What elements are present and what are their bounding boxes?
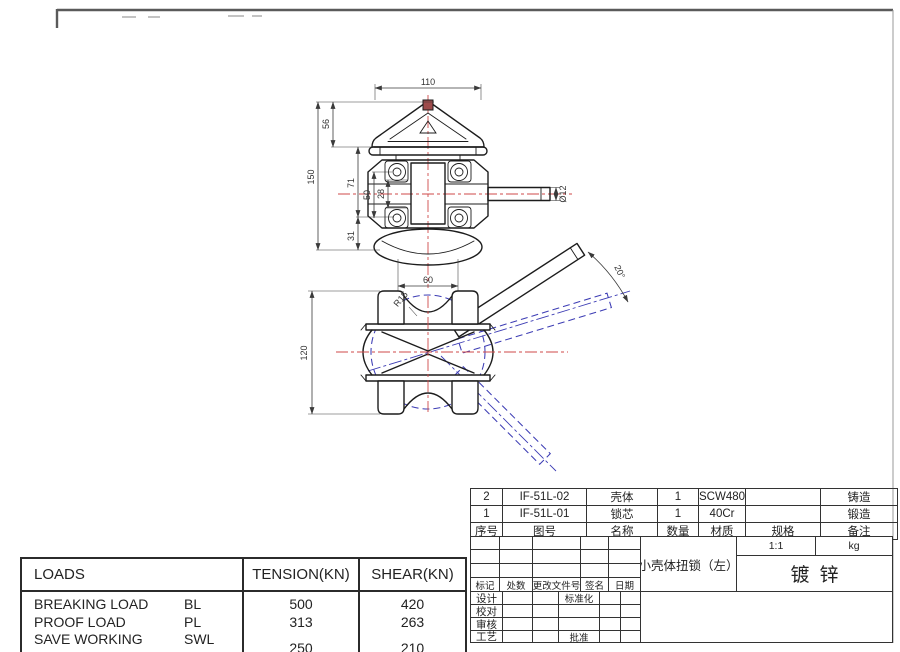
part-remark: 铸造 (821, 489, 898, 506)
loads-header-shear: SHEAR(KN) (359, 558, 466, 591)
part-spec (746, 506, 821, 523)
load-abbr: BL (184, 596, 201, 614)
load-abbr: PL (184, 614, 201, 632)
dim-inner-spacing: 28 (376, 189, 386, 199)
load-tension: 500 (243, 591, 359, 614)
parts-row: 1 IF-51L-01 锁芯 1 40Cr 锻造 (471, 506, 898, 523)
part-seq: 2 (471, 489, 503, 506)
load-shear: 263 (359, 614, 466, 632)
part-material: 40Cr (699, 506, 746, 523)
load-name: SAVE WORKING LOAD (34, 631, 184, 652)
loads-header-row: LOADS TENSION(KN) SHEAR(KN) (21, 558, 466, 591)
dim-body-height: 71 (346, 178, 356, 188)
part-dwg-no: IF-51L-02 (503, 489, 587, 506)
dim-width: 110 (421, 77, 435, 87)
top-view-dimensions: 110 150 56 71 31 50 28 60 (306, 77, 568, 291)
parts-list-table: 2 IF-51L-02 壳体 1 SCW480 铸造 1 IF-51L-01 锁… (470, 488, 898, 540)
staff-process-label: 工艺 (470, 630, 503, 643)
watermark-smudge (228, 15, 244, 17)
load-name: PROOF LOAD (34, 614, 184, 632)
title-block: 标记 处数 更改文件号 签名 日期 小壳体扭锁（左） 1:1 kg 镀锌 设计 … (470, 536, 893, 643)
load-tension: 250 (243, 631, 359, 652)
dim-overall-height: 150 (306, 169, 316, 184)
part-name: 锁芯 (587, 506, 658, 523)
revision-count-label: 处数 (499, 577, 533, 592)
part-material: SCW480 (699, 489, 746, 506)
staff-review-label: 审核 (470, 617, 503, 631)
part-remark: 锻造 (821, 506, 898, 523)
dim-head-height: 56 (321, 119, 331, 129)
watermark-smudge (122, 16, 136, 18)
company-cell (640, 591, 893, 643)
revision-sign-label: 签名 (580, 577, 609, 592)
load-name: BREAKING LOAD (34, 596, 184, 614)
watermark-smudge (252, 15, 262, 17)
loads-header-tension: TENSION(KN) (243, 558, 359, 591)
loads-row-proof: PROOF LOADPL 313 263 (21, 614, 466, 632)
weight-unit: kg (815, 536, 893, 556)
loads-row-breaking: BREAKING LOADBL 500 420 (21, 591, 466, 614)
dim-rod-diameter: Ø12 (558, 185, 568, 202)
revision-date-label: 日期 (608, 577, 641, 592)
dim-bolt-spacing: 50 (362, 190, 372, 200)
staff-standard-label: 标准化 (558, 591, 600, 605)
revision-mark-label: 标记 (470, 577, 500, 592)
dim-flange-height: 31 (346, 231, 356, 241)
loads-header-label: LOADS (21, 558, 243, 591)
scale-value: 1:1 (736, 536, 816, 556)
part-dwg-no: IF-51L-01 (503, 506, 587, 523)
surface-finish: 镀锌 (736, 555, 893, 592)
drawing-title: 小壳体扭锁（左） (640, 536, 737, 592)
dim-flange-width: 60 (423, 275, 433, 285)
load-abbr: SWL (184, 631, 214, 652)
loads-row-swl: SAVE WORKING LOADSWL 250 210 (21, 631, 466, 652)
front-view: 120 R15 20° (299, 243, 630, 471)
load-shear: 420 (359, 591, 466, 614)
watermark-smudge (148, 16, 160, 18)
parts-row: 2 IF-51L-02 壳体 1 SCW480 铸造 (471, 489, 898, 506)
staff-design-label: 设计 (470, 591, 503, 605)
dim-view-height: 120 (299, 345, 309, 360)
load-tension: 313 (243, 614, 359, 632)
loads-table: LOADS TENSION(KN) SHEAR(KN) BREAKING LOA… (20, 557, 467, 652)
part-qty: 1 (658, 489, 699, 506)
part-spec (746, 489, 821, 506)
staff-approve-label: 批准 (558, 630, 600, 643)
part-qty: 1 (658, 506, 699, 523)
revision-docno-label: 更改文件号 (532, 577, 581, 592)
dim-handle-angle: 20° (612, 263, 627, 280)
part-seq: 1 (471, 506, 503, 523)
load-shear: 210 (359, 631, 466, 652)
drawing-sheet: 110 150 56 71 31 50 28 60 (0, 0, 900, 652)
staff-check-label: 校对 (470, 604, 503, 618)
top-view: 110 150 56 71 31 50 28 60 (306, 77, 572, 291)
part-name: 壳体 (587, 489, 658, 506)
